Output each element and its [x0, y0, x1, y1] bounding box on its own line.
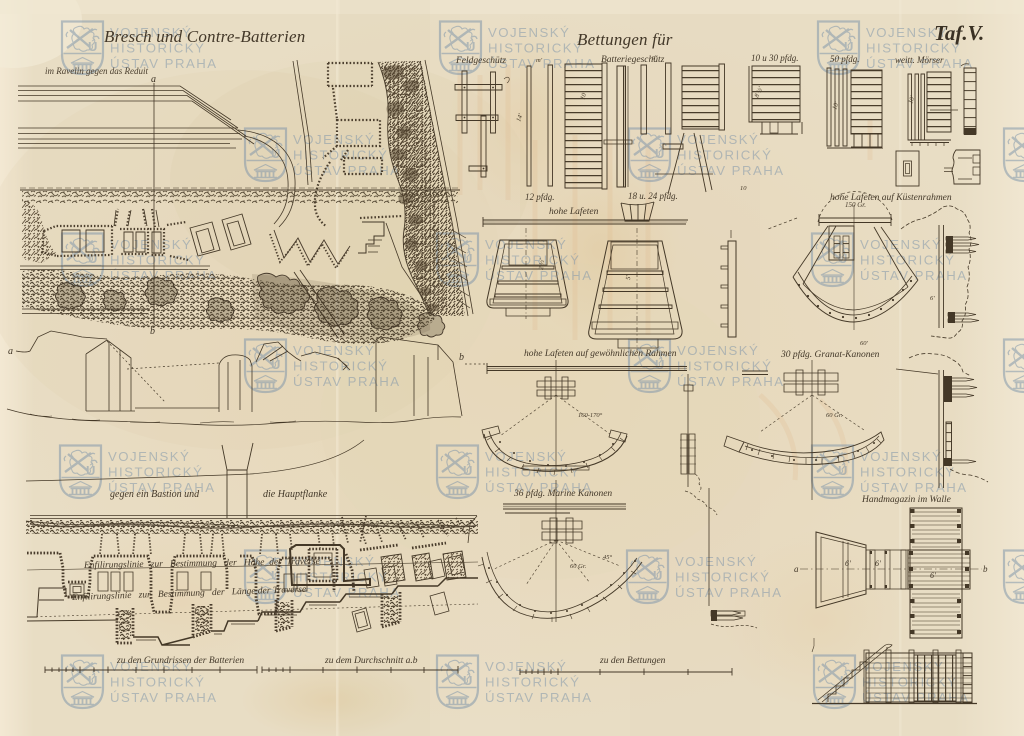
svg-text:60 Gr.: 60 Gr.: [570, 563, 587, 570]
svg-text:Bettungen für: Bettungen für: [577, 30, 673, 49]
svg-text:b: b: [459, 352, 464, 363]
svg-text:zu dem Durchschnitt a.b: zu dem Durchschnitt a.b: [324, 656, 418, 666]
svg-text:45°: 45°: [603, 554, 613, 561]
svg-text:160-170°: 160-170°: [578, 412, 603, 419]
svg-text:a: a: [8, 346, 13, 357]
svg-text:9′: 9′: [652, 55, 657, 62]
svg-text:m′: m′: [536, 57, 543, 64]
svg-text:30 pfdg. Granat-Kanonen: 30 pfdg. Granat-Kanonen: [780, 349, 880, 360]
svg-text:im Ravelin gegen das Reduit: im Ravelin gegen das Reduit: [45, 66, 148, 76]
svg-text:18 u. 24 pfdg.: 18 u. 24 pfdg.: [628, 191, 678, 201]
svg-text:36 pfdg. Marine Kanonen: 36 pfdg. Marine Kanonen: [513, 488, 612, 499]
svg-text:hohe Lafeten: hohe Lafeten: [549, 206, 599, 217]
svg-text:Handmagazin im Walle: Handmagazin im Walle: [861, 495, 951, 505]
svg-text:Taf.V.: Taf.V.: [934, 21, 984, 45]
svg-text:die Hauptflanke: die Hauptflanke: [263, 489, 328, 500]
svg-text:Feldgeschütz: Feldgeschütz: [455, 56, 506, 66]
svg-text:6': 6': [875, 559, 881, 568]
svg-text:a: a: [794, 564, 799, 574]
svg-text:zu den Grundrissen der Batteri: zu den Grundrissen der Batterien: [116, 656, 244, 666]
svg-text:zu den Bettungen: zu den Bettungen: [599, 656, 666, 666]
svg-text:6′: 6′: [930, 295, 935, 302]
svg-text:weitt. Mörser: weitt. Mörser: [895, 55, 944, 65]
svg-text:6': 6': [845, 559, 851, 568]
svg-text:a: a: [151, 74, 156, 85]
svg-text:60 Gr.: 60 Gr.: [826, 412, 843, 419]
svg-text:b: b: [983, 564, 988, 574]
svg-text:150 Gr.: 150 Gr.: [845, 201, 866, 209]
svg-text:gegen ein Bastion und: gegen ein Bastion und: [110, 489, 200, 500]
svg-text:hohe Lafeten auf gewöhnlichen: hohe Lafeten auf gewöhnlichen Rahmen: [524, 348, 677, 359]
svg-text:Bresch und Contre-Batterien: Bresch und Contre-Batterien: [104, 27, 306, 46]
svg-text:10 u 30 pfdg.: 10 u 30 pfdg.: [751, 53, 799, 63]
svg-text:6': 6': [930, 571, 936, 580]
svg-text:10: 10: [740, 185, 747, 192]
svg-text:60′: 60′: [860, 340, 869, 347]
svg-text:12 pfdg.: 12 pfdg.: [525, 192, 555, 202]
svg-text:50 pfdg.: 50 pfdg.: [830, 54, 860, 64]
svg-text:2 ½': 2 ½': [538, 258, 546, 270]
